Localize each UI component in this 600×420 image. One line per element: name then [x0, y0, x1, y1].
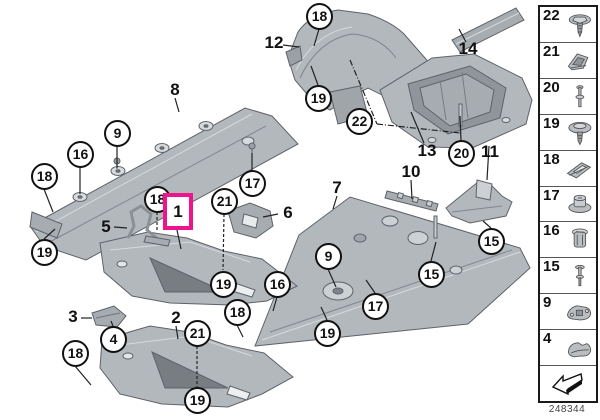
expansion-nut-icon	[564, 226, 594, 254]
label-3[interactable]: 3	[68, 307, 77, 327]
legend-item-label: 21	[540, 43, 560, 59]
legend-item-label: 16	[540, 222, 560, 238]
callout-16[interactable]: 16	[264, 271, 291, 298]
callout-18[interactable]: 18	[306, 3, 333, 30]
legend-item-22[interactable]: 22	[540, 7, 596, 42]
part-3-plate	[92, 306, 126, 327]
legend-item-label: 15	[540, 258, 560, 274]
legend-item-15[interactable]: 15	[540, 257, 596, 293]
label-2[interactable]: 2	[171, 308, 180, 328]
clamp-clip-icon	[564, 47, 594, 75]
callout-16[interactable]: 16	[67, 141, 94, 168]
legend-item-16[interactable]: 16	[540, 221, 596, 257]
callout-19[interactable]: 19	[184, 387, 211, 414]
mushroom-rivet-icon	[564, 119, 594, 147]
legend-item-label: 18	[540, 151, 560, 167]
callout-4[interactable]: 4	[100, 326, 127, 353]
drawing-number: 248344	[534, 404, 600, 415]
cap-cover-icon	[564, 334, 594, 362]
legend-item-label: 20	[540, 79, 560, 95]
callout-15[interactable]: 15	[478, 228, 505, 255]
flange-screw-rivet-icon	[564, 11, 594, 39]
label-5[interactable]: 5	[101, 217, 110, 237]
flanged-nut-icon	[564, 191, 594, 219]
front-direction-arrow-icon	[543, 368, 593, 398]
callout-17[interactable]: 17	[239, 170, 266, 197]
callout-22[interactable]: 22	[346, 108, 373, 135]
diagram-canvas	[0, 0, 600, 420]
highlight-label: 1	[173, 202, 182, 222]
legend-item-label: 17	[540, 187, 560, 203]
callout-9[interactable]: 9	[315, 243, 342, 270]
legend-item-17[interactable]: 17	[540, 186, 596, 222]
callout-18[interactable]: 18	[62, 340, 89, 367]
legend-item-label: 19	[540, 115, 560, 131]
callout-19[interactable]: 19	[210, 271, 237, 298]
parts-diagram-page: 18 19 22 20 9 16 18 17 18 21 19 15 9 16 …	[0, 0, 600, 420]
label-6[interactable]: 6	[283, 203, 292, 223]
callout-19[interactable]: 19	[31, 239, 58, 266]
callout-19[interactable]: 19	[314, 320, 341, 347]
callout-20[interactable]: 20	[448, 140, 475, 167]
callout-9[interactable]: 9	[104, 120, 131, 147]
callout-15[interactable]: 15	[418, 261, 445, 288]
fastener-legend: 22 21 20	[538, 5, 598, 403]
label-8[interactable]: 8	[170, 80, 179, 100]
callout-21[interactable]: 21	[184, 320, 211, 347]
direction-arrow-cell	[540, 365, 596, 401]
label-12[interactable]: 12	[265, 33, 284, 53]
callout-19[interactable]: 19	[305, 85, 332, 112]
legend-item-label: 4	[540, 330, 551, 346]
part-11-bracket	[446, 180, 512, 223]
legend-item-label: 22	[540, 7, 560, 23]
legend-item-20[interactable]: 20	[540, 78, 596, 114]
callout-18[interactable]: 18	[224, 299, 251, 326]
legend-item-9[interactable]: 9	[540, 293, 596, 329]
callout-17[interactable]: 17	[362, 293, 389, 320]
legend-item-18[interactable]: 18	[540, 150, 596, 186]
label-14[interactable]: 14	[459, 39, 478, 59]
blind-rivet-icon	[564, 262, 594, 290]
long-pin-rivet-icon	[564, 83, 594, 111]
label-13[interactable]: 13	[418, 141, 437, 161]
callout-18[interactable]: 18	[31, 163, 58, 190]
legend-item-4[interactable]: 4	[540, 329, 596, 365]
legend-item-19[interactable]: 19	[540, 114, 596, 150]
legend-item-label: 9	[540, 294, 551, 310]
label-11[interactable]: 11	[481, 142, 499, 162]
speed-nut-clip-icon	[564, 155, 594, 183]
cover-plate-icon	[564, 298, 594, 326]
label-10[interactable]: 10	[402, 162, 421, 182]
label-7[interactable]: 7	[332, 178, 341, 198]
highlight-box-1[interactable]: 1	[163, 193, 193, 230]
callout-21[interactable]: 21	[211, 188, 238, 215]
legend-item-21[interactable]: 21	[540, 42, 596, 78]
